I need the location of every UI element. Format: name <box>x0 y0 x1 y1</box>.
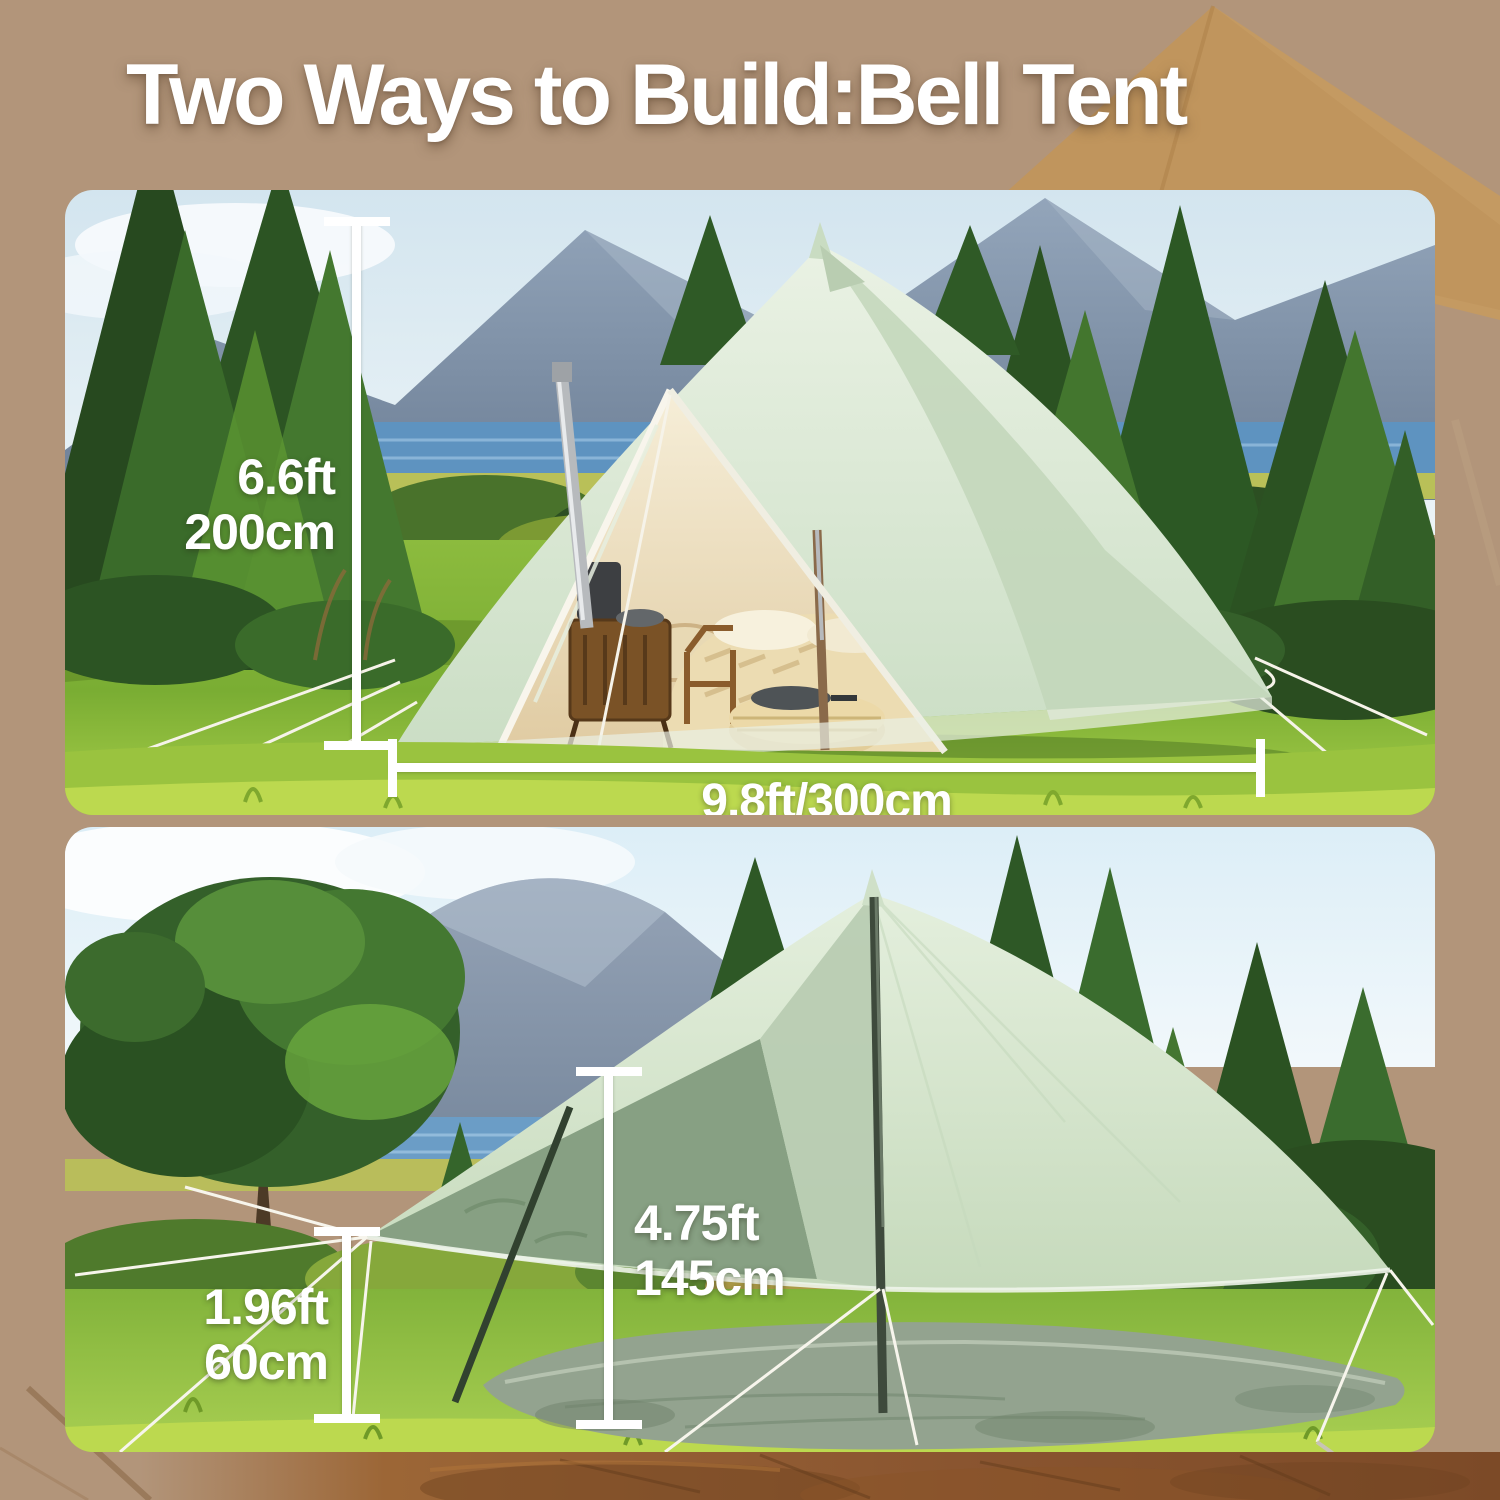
canopy-center-height-label: 4.75ft 145cm <box>634 1196 894 1306</box>
bg-ground-band <box>140 1452 1500 1500</box>
tent-diameter-measure-line <box>390 763 1263 772</box>
canopy-edge-height-line <box>342 1232 351 1418</box>
tent-height-measure-line <box>352 222 361 745</box>
page-title: Two Ways to Build:Bell Tent <box>126 50 1466 140</box>
photo-bell-tent-pitched: 6.6ft 200cm 9.8ft/300cm <box>65 190 1435 815</box>
tent-diameter-label: 9.8ft/300cm <box>390 774 1263 815</box>
product-infographic: Two Ways to Build:Bell Tent <box>0 0 1500 1500</box>
photo-canopy-mode: 4.75ft 145cm 1.96ft 60cm <box>65 827 1435 1452</box>
tent-height-label: 6.6ft 200cm <box>115 450 335 560</box>
canopy-edge-height-label: 1.96ft 60cm <box>108 1280 328 1390</box>
canopy-center-height-line <box>604 1072 613 1424</box>
